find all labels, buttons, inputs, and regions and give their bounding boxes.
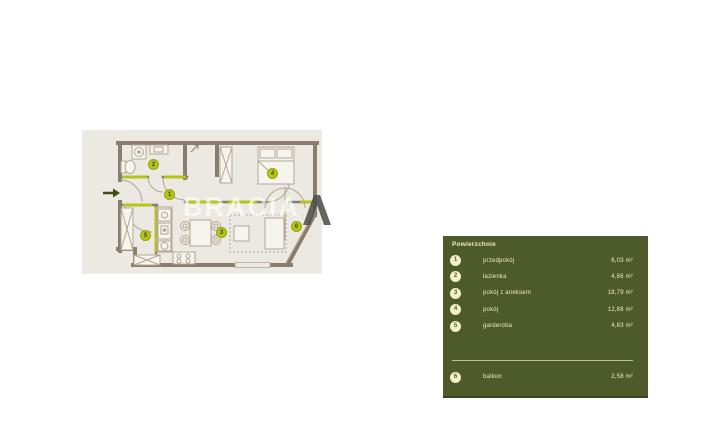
stove-icon bbox=[173, 252, 195, 264]
legend-room-area: 18,79 m² bbox=[608, 290, 633, 296]
legend-room-area: 4,86 m² bbox=[611, 274, 633, 280]
watermark-text: BRACIA bbox=[183, 192, 300, 223]
legend-row-garderoba: 5 garderoba 4,83 m² bbox=[449, 320, 633, 333]
legend-room-label: łazienka bbox=[483, 274, 611, 280]
legend-row-przedpokoj: 1 przedpokój 6,03 m² bbox=[449, 254, 633, 267]
legend-room-label: przedpokój bbox=[483, 258, 611, 264]
screenshot-stage: 1 2 3 4 5 6 BRACIA Powierzchnie 1 przedp… bbox=[0, 0, 710, 424]
legend-num-badge: 5 bbox=[450, 321, 461, 332]
legend-row-pokoj: 4 pokój 12,88 m² bbox=[449, 303, 633, 316]
legend-row-pokoj-z-aneksem: 3 pokój z aneksem 18,79 m² bbox=[449, 287, 633, 300]
watermark-logo-icon bbox=[303, 195, 331, 225]
legend-room-label: pokój bbox=[483, 307, 608, 313]
legend-room-label: balkon bbox=[483, 374, 611, 380]
legend-num-badge: 4 bbox=[450, 304, 461, 315]
room-badge-1: 1 bbox=[164, 189, 175, 200]
legend-room-area: 4,83 m² bbox=[611, 323, 633, 329]
room-badge-3: 3 bbox=[216, 227, 227, 238]
legend-title: Powierzchnie bbox=[452, 241, 633, 248]
legend-room-area: 6,03 m² bbox=[611, 258, 633, 264]
legend-row-balkon: 6 balkon 2,58 m² bbox=[449, 371, 633, 384]
legend-room-area: 2,58 m² bbox=[611, 374, 633, 380]
legend-num-badge: 3 bbox=[450, 288, 461, 299]
legend-num-badge: 2 bbox=[450, 271, 461, 282]
legend-room-area: 12,88 m² bbox=[608, 307, 633, 313]
sink-icon bbox=[150, 145, 168, 154]
window-icon bbox=[235, 263, 270, 268]
table-icon bbox=[190, 220, 211, 246]
room-badge-2: 2 bbox=[148, 159, 159, 170]
room-badge-4: 4 bbox=[267, 168, 278, 179]
legend-num-badge: 6 bbox=[450, 372, 461, 383]
room-badge-5: 5 bbox=[140, 230, 151, 241]
legend-divider bbox=[452, 360, 633, 361]
legend-room-label: pokój z aneksem bbox=[483, 290, 608, 296]
legend-room-label: garderoba bbox=[483, 323, 611, 329]
areas-legend-panel: Powierzchnie 1 przedpokój 6,03 m² 2 łazi… bbox=[443, 236, 648, 398]
legend-row-lazienka: 2 łazienka 4,86 m² bbox=[449, 270, 633, 283]
legend-num-badge: 1 bbox=[450, 255, 461, 266]
